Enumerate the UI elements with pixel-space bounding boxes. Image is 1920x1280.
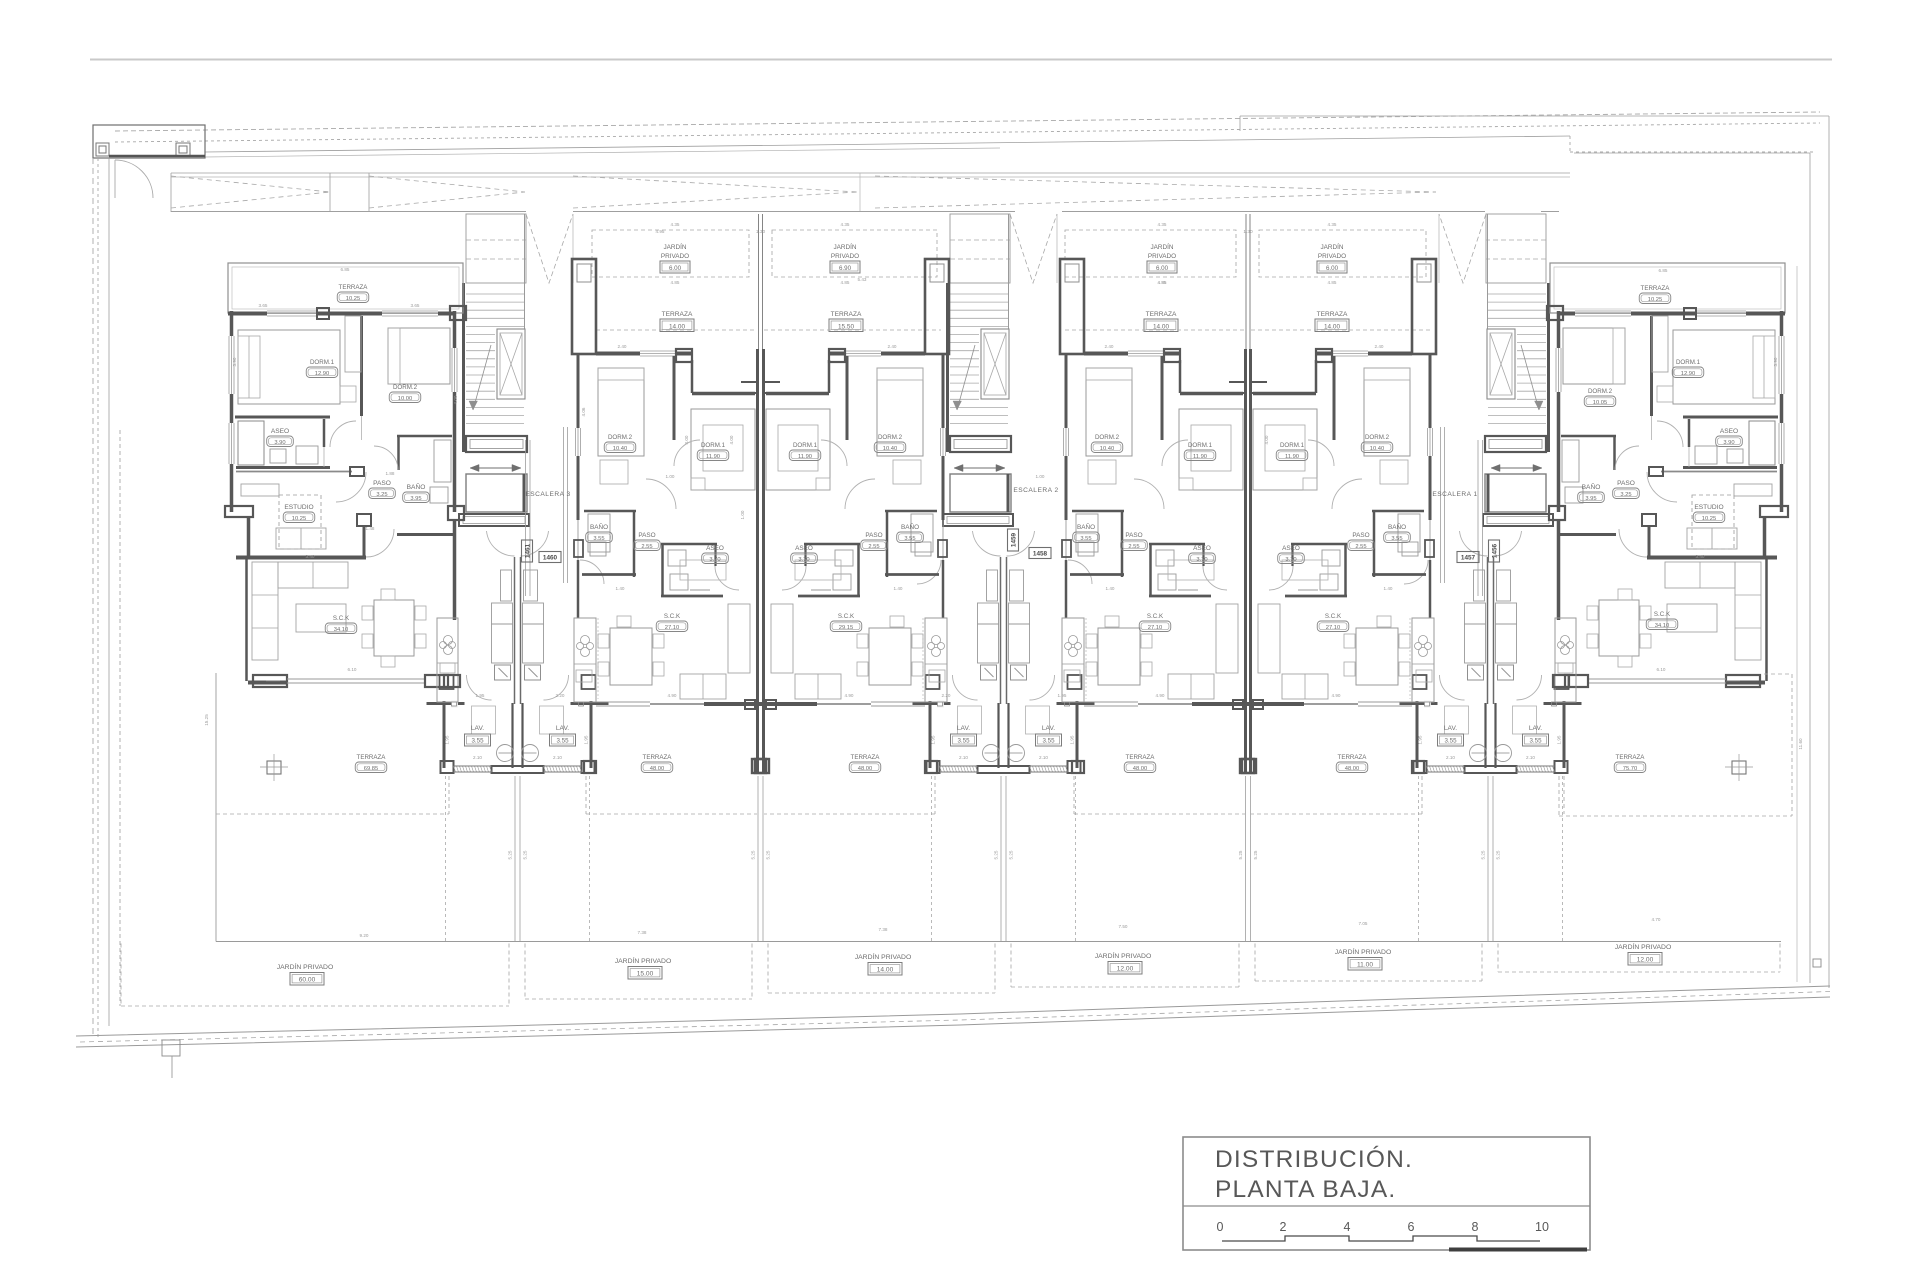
svg-text:4.85: 4.85 — [1328, 280, 1337, 285]
svg-text:14.00: 14.00 — [669, 324, 685, 331]
svg-text:TERRAZA: TERRAZA — [339, 284, 369, 291]
svg-text:0: 0 — [1217, 1220, 1224, 1234]
svg-text:48.00: 48.00 — [650, 766, 665, 772]
svg-text:1.95: 1.95 — [1070, 735, 1075, 744]
svg-text:6.90: 6.90 — [839, 265, 852, 272]
svg-text:PASO: PASO — [638, 532, 655, 539]
svg-text:PRIVADO: PRIVADO — [831, 253, 859, 260]
svg-text:27.10: 27.10 — [1326, 625, 1341, 631]
svg-text:ASEO: ASEO — [1720, 428, 1738, 435]
svg-text:LAV.: LAV. — [1042, 725, 1055, 732]
svg-text:5.25: 5.25 — [751, 850, 756, 859]
svg-text:5.25: 5.25 — [508, 850, 513, 859]
svg-text:3.70: 3.70 — [798, 557, 809, 563]
svg-text:DORM.2: DORM.2 — [393, 384, 418, 391]
svg-text:DORM.2: DORM.2 — [1365, 434, 1390, 441]
svg-text:4.00: 4.00 — [453, 395, 458, 404]
svg-text:JARDÍN PRIVADO: JARDÍN PRIVADO — [1335, 947, 1392, 956]
svg-text:3.55: 3.55 — [593, 536, 604, 542]
svg-text:11.60: 11.60 — [1798, 738, 1803, 750]
svg-text:10.40: 10.40 — [1100, 446, 1115, 452]
svg-text:TERRAZA: TERRAZA — [662, 311, 693, 318]
svg-text:PASO: PASO — [373, 480, 391, 487]
svg-text:3.55: 3.55 — [904, 536, 915, 542]
svg-text:1458: 1458 — [1033, 550, 1048, 557]
svg-text:14.00: 14.00 — [877, 967, 894, 974]
svg-text:2.40: 2.40 — [1105, 344, 1114, 349]
svg-text:TERRAZA: TERRAZA — [1126, 754, 1156, 761]
svg-text:5.43: 5.43 — [858, 277, 867, 282]
svg-text:1.00: 1.00 — [666, 474, 675, 479]
svg-text:5.25: 5.25 — [994, 850, 999, 859]
svg-text:BAÑO: BAÑO — [1582, 482, 1601, 491]
svg-text:5.25: 5.25 — [1496, 850, 1501, 859]
svg-text:3.90: 3.90 — [1773, 357, 1778, 366]
svg-text:6.85: 6.85 — [341, 267, 350, 272]
svg-text:14.00: 14.00 — [1324, 324, 1340, 331]
svg-text:1.30: 1.30 — [1243, 229, 1253, 235]
svg-text:PLANTA BAJA.: PLANTA BAJA. — [1215, 1176, 1396, 1203]
svg-text:4.85: 4.85 — [1158, 280, 1167, 285]
svg-text:48.00: 48.00 — [1133, 766, 1148, 772]
svg-text:8: 8 — [1472, 1220, 1479, 1234]
svg-text:1461: 1461 — [525, 543, 532, 558]
svg-text:2.10: 2.10 — [959, 755, 968, 760]
svg-text:7.38: 7.38 — [638, 930, 647, 935]
svg-text:3.90: 3.90 — [274, 440, 285, 446]
svg-text:1.00: 1.00 — [740, 510, 745, 519]
svg-text:1459: 1459 — [1011, 532, 1018, 547]
svg-text:PASO: PASO — [1617, 480, 1635, 487]
svg-text:10.25: 10.25 — [346, 296, 361, 302]
svg-text:3.55: 3.55 — [1042, 738, 1055, 745]
svg-text:7.05: 7.05 — [1359, 921, 1368, 926]
svg-text:1.95: 1.95 — [1557, 735, 1562, 744]
svg-text:S.C.K: S.C.K — [664, 613, 681, 620]
svg-text:TERRAZA: TERRAZA — [1641, 285, 1671, 292]
svg-text:1.95: 1.95 — [1418, 735, 1423, 744]
svg-text:ESCALERA 1: ESCALERA 1 — [1432, 491, 1477, 498]
svg-text:S.C.K: S.C.K — [1147, 613, 1164, 620]
svg-text:DORM.2: DORM.2 — [878, 434, 903, 441]
svg-text:1.95: 1.95 — [1058, 693, 1067, 698]
svg-text:4.90: 4.90 — [1332, 693, 1341, 698]
svg-text:2.20: 2.20 — [556, 693, 565, 698]
svg-text:48.00: 48.00 — [1345, 766, 1360, 772]
svg-text:ASEO: ASEO — [1282, 545, 1300, 552]
svg-text:10.05: 10.05 — [1593, 400, 1608, 406]
svg-text:BAÑO: BAÑO — [1388, 522, 1406, 531]
svg-text:DORM.2: DORM.2 — [1588, 388, 1613, 395]
svg-text:2.10: 2.10 — [1446, 755, 1455, 760]
svg-text:JARDÍN PRIVADO: JARDÍN PRIVADO — [615, 956, 672, 965]
svg-text:ESCALERA 3: ESCALERA 3 — [525, 491, 570, 498]
svg-text:11.00: 11.00 — [1357, 962, 1373, 969]
svg-text:TERRAZA: TERRAZA — [831, 311, 862, 318]
svg-text:LAV.: LAV. — [957, 725, 970, 732]
svg-text:34.10: 34.10 — [334, 627, 349, 633]
svg-text:JARDÍN: JARDÍN — [663, 242, 686, 251]
svg-text:3.55: 3.55 — [1391, 536, 1402, 542]
svg-text:15.00: 15.00 — [637, 971, 654, 978]
svg-text:1.40: 1.40 — [1106, 586, 1115, 591]
svg-text:10.25: 10.25 — [1648, 297, 1663, 303]
svg-text:2.55: 2.55 — [641, 544, 652, 550]
svg-text:6.00: 6.00 — [1326, 265, 1339, 272]
svg-text:LAV.: LAV. — [1529, 725, 1542, 732]
svg-text:TERRAZA: TERRAZA — [1317, 311, 1348, 318]
svg-text:ESCALERA 2: ESCALERA 2 — [1013, 487, 1058, 494]
svg-text:DISTRIBUCIÓN.: DISTRIBUCIÓN. — [1215, 1146, 1413, 1173]
svg-text:11.90: 11.90 — [1193, 454, 1207, 460]
svg-text:27.10: 27.10 — [1148, 625, 1163, 631]
svg-text:JARDÍN: JARDÍN — [1150, 242, 1173, 251]
svg-text:10.00: 10.00 — [398, 396, 413, 402]
svg-text:12.90: 12.90 — [315, 371, 330, 377]
svg-text:27.10: 27.10 — [665, 625, 680, 631]
svg-text:2.10: 2.10 — [553, 755, 562, 760]
svg-text:3.70: 3.70 — [1196, 557, 1207, 563]
svg-text:10.40: 10.40 — [1370, 446, 1385, 452]
svg-text:3.65: 3.65 — [259, 303, 268, 308]
svg-text:PRIVADO: PRIVADO — [1148, 253, 1176, 260]
svg-text:2.20: 2.20 — [942, 693, 951, 698]
svg-text:12.00: 12.00 — [1117, 966, 1134, 973]
svg-text:5.25: 5.25 — [1238, 850, 1243, 859]
svg-text:2.40: 2.40 — [888, 344, 897, 349]
svg-text:3.90: 3.90 — [1723, 440, 1734, 446]
svg-text:LAV.: LAV. — [471, 725, 484, 732]
svg-text:2.55: 2.55 — [1355, 544, 1366, 550]
svg-text:3.40: 3.40 — [1696, 554, 1705, 559]
svg-text:BAÑO: BAÑO — [901, 522, 919, 531]
svg-text:9.20: 9.20 — [360, 933, 369, 938]
svg-text:6.10: 6.10 — [348, 667, 357, 672]
svg-text:1.00: 1.00 — [1036, 474, 1045, 479]
svg-text:6.00: 6.00 — [1156, 265, 1169, 272]
svg-text:2.10: 2.10 — [1039, 755, 1048, 760]
svg-text:3.95: 3.95 — [1585, 496, 1596, 502]
svg-text:S.C.K: S.C.K — [1325, 613, 1342, 620]
svg-text:TERRAZA: TERRAZA — [643, 754, 673, 761]
svg-text:1.40: 1.40 — [894, 586, 903, 591]
svg-text:PRIVADO: PRIVADO — [1318, 253, 1346, 260]
svg-text:4.35: 4.35 — [1158, 222, 1167, 227]
svg-text:3.65: 3.65 — [411, 303, 420, 308]
svg-text:3.25: 3.25 — [376, 492, 387, 498]
svg-text:75.70: 75.70 — [1623, 766, 1638, 772]
svg-text:4: 4 — [1344, 1220, 1351, 1234]
svg-text:4.00: 4.00 — [729, 435, 734, 444]
svg-text:3.40: 3.40 — [306, 554, 315, 559]
svg-text:ASEO: ASEO — [706, 545, 724, 552]
svg-text:2.40: 2.40 — [618, 344, 627, 349]
svg-text:BAÑO: BAÑO — [590, 522, 608, 531]
svg-text:S.C.K: S.C.K — [333, 615, 350, 622]
svg-text:ASEO: ASEO — [1193, 545, 1211, 552]
svg-text:12.00: 12.00 — [1637, 957, 1654, 964]
svg-text:DORM.1: DORM.1 — [1280, 442, 1305, 449]
svg-text:DORM.1: DORM.1 — [1676, 359, 1701, 366]
svg-text:4.35: 4.35 — [671, 222, 680, 227]
svg-text:4.00: 4.00 — [684, 435, 689, 444]
svg-text:3.55: 3.55 — [1080, 536, 1091, 542]
svg-text:3.70: 3.70 — [709, 557, 720, 563]
svg-text:6.10: 6.10 — [1657, 667, 1666, 672]
svg-text:14.00: 14.00 — [1153, 324, 1169, 331]
svg-text:JARDÍN PRIVADO: JARDÍN PRIVADO — [1095, 951, 1152, 960]
svg-text:5.25: 5.25 — [1481, 850, 1486, 859]
svg-text:DORM.1: DORM.1 — [310, 359, 335, 366]
svg-text:1.95: 1.95 — [584, 735, 589, 744]
svg-text:1.95: 1.95 — [476, 693, 485, 698]
svg-text:1.40: 1.40 — [1384, 586, 1393, 591]
svg-text:TERRAZA: TERRAZA — [1338, 754, 1368, 761]
svg-text:2.40: 2.40 — [1375, 344, 1384, 349]
svg-text:TERRAZA: TERRAZA — [851, 754, 881, 761]
svg-text:BAÑO: BAÑO — [1077, 522, 1095, 531]
svg-text:4.90: 4.90 — [668, 693, 677, 698]
svg-text:2: 2 — [1280, 1220, 1287, 1234]
svg-text:12.90: 12.90 — [1681, 371, 1696, 377]
svg-text:S.C.K: S.C.K — [838, 613, 855, 620]
svg-text:JARDÍN PRIVADO: JARDÍN PRIVADO — [1615, 942, 1672, 951]
svg-text:2.55: 2.55 — [1128, 544, 1139, 550]
svg-text:ESTUDIO: ESTUDIO — [1694, 504, 1723, 511]
svg-text:34.10: 34.10 — [1655, 623, 1670, 629]
svg-text:LAV.: LAV. — [1444, 725, 1457, 732]
svg-text:4.00: 4.00 — [1264, 435, 1269, 444]
svg-text:3.55: 3.55 — [471, 738, 484, 745]
svg-text:3.55: 3.55 — [1529, 738, 1542, 745]
svg-text:JARDÍN PRIVADO: JARDÍN PRIVADO — [277, 962, 334, 971]
svg-text:3.95: 3.95 — [410, 496, 421, 502]
svg-text:TERRAZA: TERRAZA — [357, 754, 387, 761]
svg-text:TERRAZA: TERRAZA — [1616, 754, 1646, 761]
svg-text:PRIVADO: PRIVADO — [661, 253, 689, 260]
svg-text:7.38: 7.38 — [879, 927, 888, 932]
svg-text:PASO: PASO — [1352, 532, 1369, 539]
svg-text:3.55: 3.55 — [556, 738, 569, 745]
svg-text:LAV.: LAV. — [556, 725, 569, 732]
svg-text:48.00: 48.00 — [858, 766, 873, 772]
svg-text:1.95: 1.95 — [445, 735, 450, 744]
svg-text:JARDÍN: JARDÍN — [1320, 242, 1343, 251]
svg-text:5.25: 5.25 — [766, 850, 771, 859]
svg-text:10.40: 10.40 — [883, 446, 898, 452]
svg-text:1.95: 1.95 — [931, 735, 936, 744]
svg-text:4.90: 4.90 — [845, 693, 854, 698]
svg-text:1457: 1457 — [1461, 554, 1476, 561]
svg-text:5.25: 5.25 — [1009, 850, 1014, 859]
svg-text:DORM.1: DORM.1 — [1188, 442, 1213, 449]
svg-text:PASO: PASO — [1125, 532, 1142, 539]
svg-text:JARDÍN PRIVADO: JARDÍN PRIVADO — [855, 952, 912, 961]
svg-text:10.25: 10.25 — [292, 516, 307, 522]
svg-text:4.35: 4.35 — [841, 222, 850, 227]
svg-text:3.55: 3.55 — [957, 738, 970, 745]
svg-text:JARDÍN: JARDÍN — [833, 242, 856, 251]
svg-text:3.90: 3.90 — [232, 357, 237, 366]
svg-text:29.15: 29.15 — [839, 625, 854, 631]
svg-text:5.25: 5.25 — [1253, 850, 1258, 859]
svg-text:PASO: PASO — [865, 532, 882, 539]
svg-text:3.70: 3.70 — [1285, 557, 1296, 563]
svg-text:DORM.2: DORM.2 — [608, 434, 633, 441]
svg-text:ESTUDIO: ESTUDIO — [284, 504, 313, 511]
svg-text:S.C.K: S.C.K — [1654, 611, 1671, 618]
svg-text:7.50: 7.50 — [1119, 924, 1128, 929]
svg-text:69.85: 69.85 — [364, 766, 379, 772]
svg-text:10: 10 — [1535, 1220, 1549, 1234]
svg-text:6.00: 6.00 — [669, 265, 682, 272]
svg-text:DORM.1: DORM.1 — [701, 442, 726, 449]
svg-text:1.88: 1.88 — [386, 471, 395, 476]
svg-text:11.90: 11.90 — [798, 454, 812, 460]
svg-text:6: 6 — [1408, 1220, 1415, 1234]
svg-text:DORM.2: DORM.2 — [1095, 434, 1120, 441]
svg-text:10.40: 10.40 — [613, 446, 628, 452]
svg-text:1.48: 1.48 — [366, 526, 375, 531]
svg-text:4.70: 4.70 — [1652, 917, 1661, 922]
svg-text:TERRAZA: TERRAZA — [1146, 311, 1177, 318]
svg-text:15.25: 15.25 — [204, 714, 209, 726]
svg-text:4.85: 4.85 — [841, 280, 850, 285]
svg-text:BAÑO: BAÑO — [407, 482, 426, 491]
svg-text:10.25: 10.25 — [1702, 516, 1717, 522]
svg-text:4.85: 4.85 — [671, 280, 680, 285]
svg-text:5.25: 5.25 — [523, 850, 528, 859]
svg-text:60.00: 60.00 — [299, 977, 316, 984]
svg-text:DORM.1: DORM.1 — [793, 442, 818, 449]
svg-text:ASEO: ASEO — [271, 428, 289, 435]
svg-text:2.10: 2.10 — [473, 755, 482, 760]
svg-text:1456: 1456 — [1492, 543, 1499, 558]
svg-text:15.50: 15.50 — [838, 324, 854, 331]
svg-text:1460: 1460 — [543, 554, 558, 561]
svg-text:3.55: 3.55 — [1444, 738, 1457, 745]
svg-text:4.95: 4.95 — [656, 229, 665, 234]
svg-text:6.85: 6.85 — [1659, 268, 1668, 273]
svg-text:1.40: 1.40 — [616, 586, 625, 591]
svg-text:4.90: 4.90 — [1156, 693, 1165, 698]
svg-text:2.55: 2.55 — [868, 544, 879, 550]
svg-text:4.06: 4.06 — [581, 407, 586, 416]
svg-text:11.90: 11.90 — [706, 454, 720, 460]
svg-text:4.35: 4.35 — [1328, 222, 1337, 227]
svg-text:1.30: 1.30 — [756, 229, 766, 235]
svg-text:11.90: 11.90 — [1285, 454, 1299, 460]
svg-text:2.10: 2.10 — [1526, 755, 1535, 760]
svg-text:ASEO: ASEO — [795, 545, 813, 552]
svg-text:3.25: 3.25 — [1620, 492, 1631, 498]
